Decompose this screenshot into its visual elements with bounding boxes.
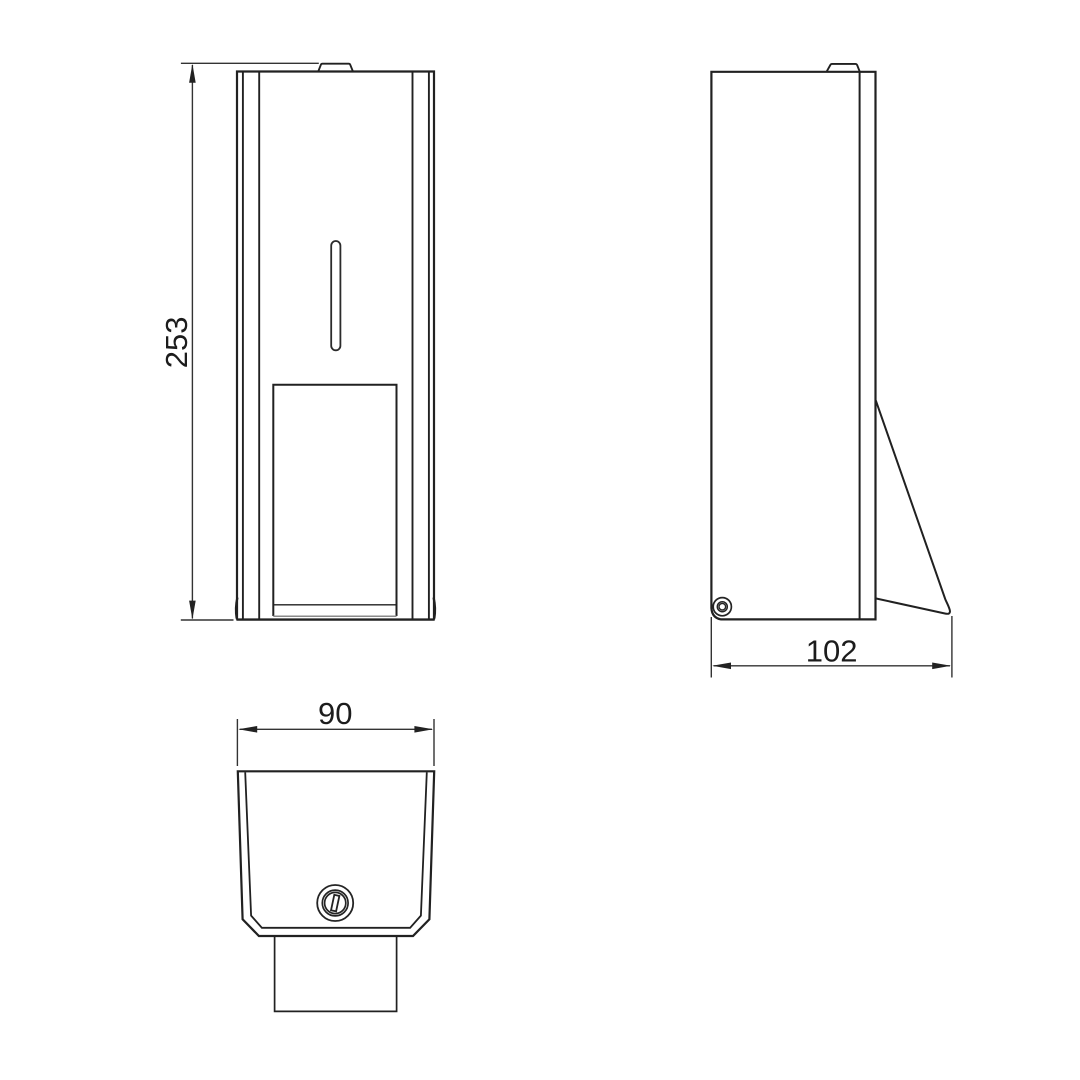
svg-text:90: 90 — [318, 696, 352, 731]
svg-text:102: 102 — [806, 633, 858, 668]
svg-text:253: 253 — [159, 317, 194, 369]
